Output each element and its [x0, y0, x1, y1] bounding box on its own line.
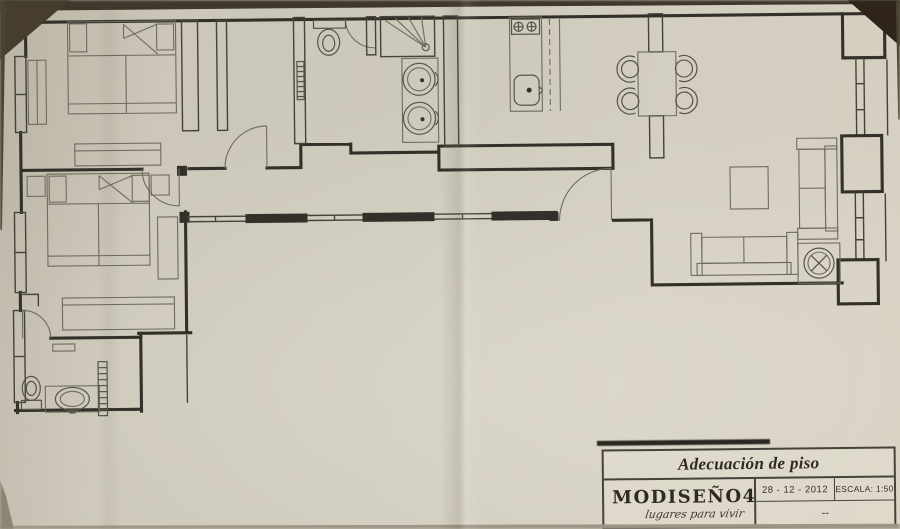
title-block: Adecuación de piso MODISEÑO4 lugares par… [602, 446, 897, 529]
door-jamb [549, 212, 558, 221]
nightstand [27, 176, 45, 196]
wall-segment [362, 212, 434, 222]
toilet-tank [313, 20, 345, 28]
kitchen-south-wall [439, 144, 613, 170]
bed-fold [99, 175, 133, 203]
shelf [53, 344, 75, 351]
bed-lines [47, 203, 150, 266]
shaft-wall [187, 335, 188, 403]
bedroom1-door-swing [225, 126, 267, 168]
drawing-scale: ESCALA: 1:50 [835, 477, 894, 500]
exterior-wall-left-mid [21, 132, 22, 212]
burner [527, 22, 536, 31]
pillow [132, 175, 149, 201]
closet-wall [216, 20, 227, 130]
window [307, 215, 362, 221]
bathroom1-door-swing [345, 19, 374, 48]
column [838, 260, 878, 304]
double-bed [67, 21, 176, 114]
coffee-table [730, 167, 768, 209]
window [186, 216, 245, 222]
bathroom-1 [296, 16, 438, 143]
company-tagline: lugares para vivir [644, 507, 745, 521]
dining-chair [617, 88, 639, 114]
facade-outer-line [887, 59, 888, 135]
corridor-south-wall [186, 211, 558, 225]
floor-plan-photo: Adecuación de piso MODISEÑO4 lugares par… [0, 0, 900, 529]
bedroom2-east-wall [137, 212, 190, 334]
pillow [156, 24, 173, 50]
basin-drain [420, 117, 424, 121]
dresser [75, 143, 161, 166]
window [855, 192, 864, 260]
toilet-tank [21, 400, 41, 409]
towel-radiator [297, 62, 304, 100]
bedroom-2 [27, 173, 179, 331]
bedroom2-door-swing [142, 169, 179, 206]
wardrobe-line [62, 304, 174, 305]
drawing-date: 28 - 12 - 2012 [756, 478, 835, 501]
bathroom2-door-swing [22, 310, 50, 338]
dining-area [617, 51, 698, 116]
nightstand [151, 175, 169, 195]
counter-edge [559, 19, 560, 111]
sofa-two-seater [797, 138, 838, 239]
sink-drain [527, 88, 532, 93]
wall-notch [22, 294, 38, 306]
company-name: MODISEÑO4 [612, 488, 748, 507]
washbasin-inner [408, 107, 431, 130]
kitchen-west-wall [443, 16, 458, 146]
exterior-wall-bottom-left [15, 401, 141, 412]
wall-segment [491, 211, 557, 221]
column [842, 135, 883, 191]
wardrobe-line [37, 60, 38, 124]
window [434, 214, 491, 220]
dining-wall-stub [648, 14, 662, 52]
dining-chair [675, 55, 697, 81]
column [842, 13, 884, 57]
bathroom2-east-wall [141, 333, 142, 411]
tall-dresser [157, 217, 178, 279]
pillow [49, 176, 66, 202]
sofa [691, 232, 798, 275]
bedroom-1 [27, 21, 176, 167]
overhead-cabinet-dashed [549, 19, 550, 111]
kitchen [509, 17, 560, 112]
dresser-line [75, 150, 161, 151]
revision-mark: -- [756, 500, 894, 525]
dining-chair [617, 56, 639, 82]
washbasin-inner [407, 68, 430, 91]
washbasin-inner [60, 391, 84, 406]
interior-walls [21, 14, 666, 413]
company-logo: MODISEÑO4 lugares para vivir [604, 479, 756, 528]
dining-table [638, 52, 677, 116]
bed-lines [68, 55, 177, 114]
facade-outer-line [885, 193, 886, 261]
toilet-bowl [323, 35, 335, 51]
dining-wall-stub [649, 116, 663, 158]
doors [19, 16, 612, 338]
bathroom2-north-wall [51, 337, 141, 338]
right-facade [835, 13, 889, 304]
living-room [690, 138, 841, 285]
burner [514, 22, 523, 31]
bed-fold [123, 24, 157, 54]
bathroom-2 [21, 344, 108, 417]
side-table-lamp [798, 243, 840, 283]
basin-drain [420, 78, 424, 82]
wardrobe [62, 297, 174, 330]
bedroom-divider-wall [23, 169, 142, 170]
partition-wall [366, 17, 375, 55]
dining-chair [676, 87, 698, 113]
closet-wall [181, 21, 198, 131]
pillow [69, 24, 86, 52]
window [856, 58, 865, 136]
shower-spray-lines [385, 17, 425, 47]
entry-door-swing [559, 168, 612, 221]
drawing-title: Adecuación de piso [604, 448, 894, 480]
left-facade [11, 56, 30, 402]
toilet-bowl [26, 381, 36, 395]
wall-segment [245, 213, 307, 223]
